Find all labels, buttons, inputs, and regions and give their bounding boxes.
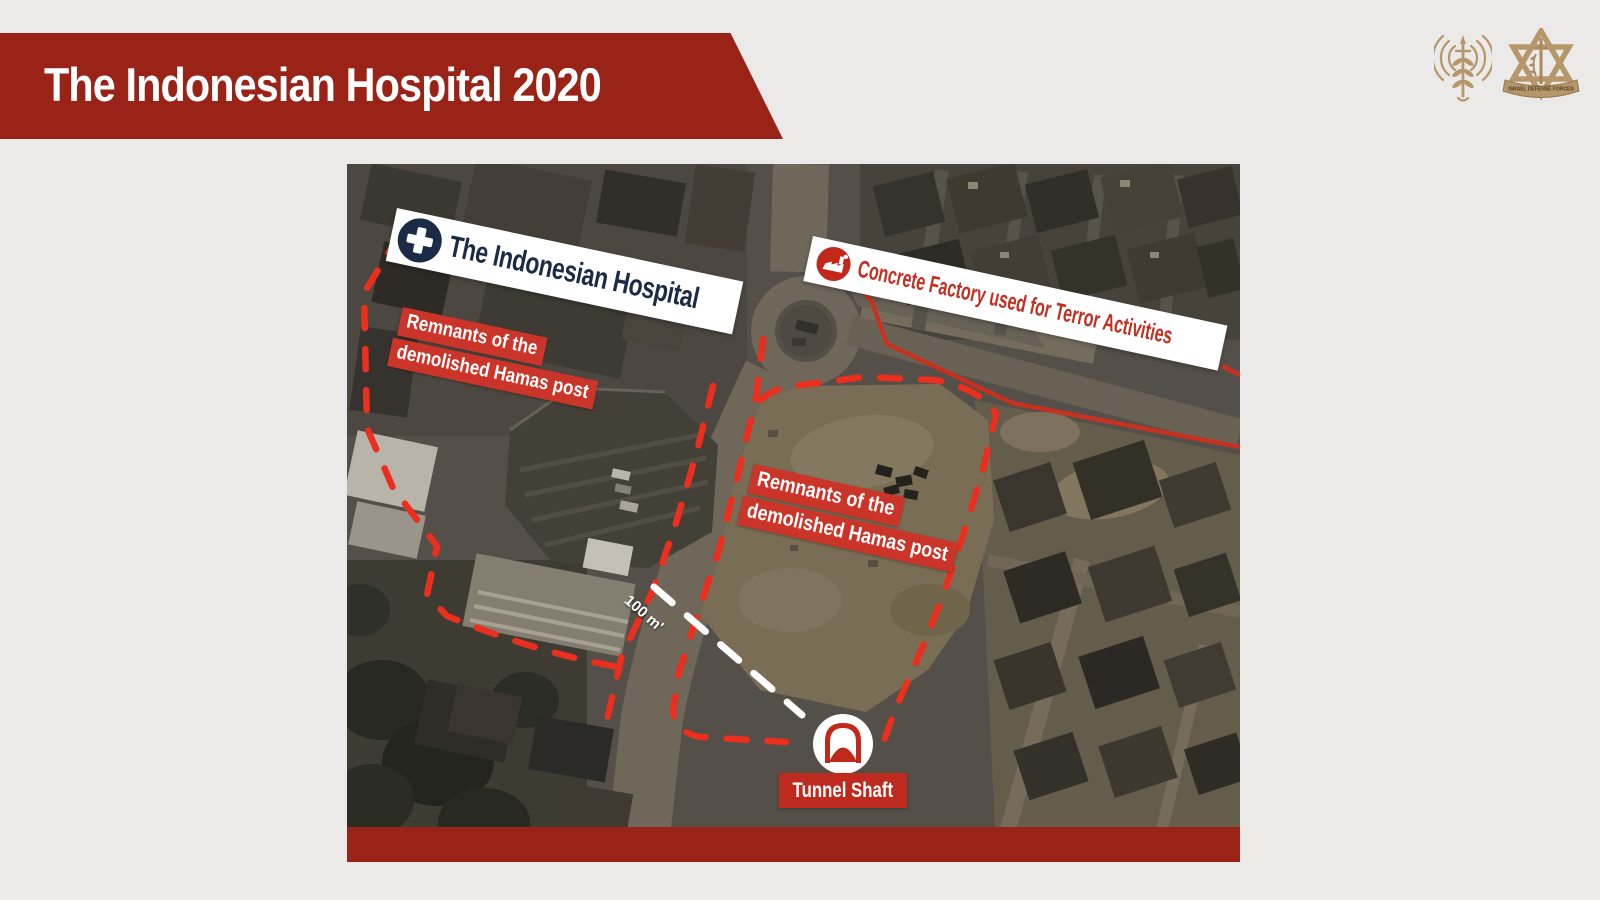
idf-emblem-icon: ISRAEL DEFENSE FORCES	[1500, 28, 1582, 109]
tunnel-shaft-label: Tunnel Shaft	[793, 779, 893, 803]
tunnel-shaft-label-box: Tunnel Shaft	[779, 773, 907, 808]
factory-icon	[813, 244, 853, 284]
medical-cross-icon	[394, 214, 446, 266]
page-title: The Indonesian Hospital 2020	[44, 57, 601, 112]
tunnel-icon	[825, 723, 861, 763]
idf-ribbon-text: ISRAEL DEFENSE FORCES	[1508, 87, 1574, 93]
idf-spokesperson-logo-icon	[1434, 28, 1492, 115]
bottom-red-strip	[347, 827, 1240, 862]
header-banner: The Indonesian Hospital 2020	[0, 33, 783, 139]
logos: ISRAEL DEFENSE FORCES	[1434, 28, 1582, 115]
slide: The Indonesian Hospital 2020	[0, 0, 1600, 900]
tunnel-shaft-marker	[813, 714, 873, 774]
